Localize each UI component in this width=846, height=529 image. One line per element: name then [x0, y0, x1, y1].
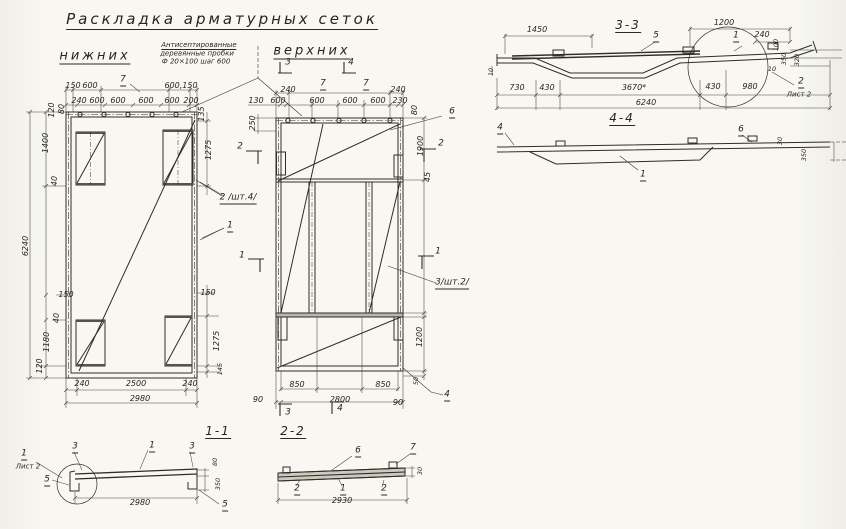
ref-upper-mesh-3: 3/шт.2/ — [435, 279, 469, 290]
plug-note-line3: Ф 20×100 шаг 600 — [162, 59, 231, 66]
dim-lv-left-6240: 6240 — [22, 236, 30, 256]
cut-mark-1-left: 1 — [239, 252, 245, 261]
dim-uv-top2-230: 230 — [392, 97, 407, 105]
dim-s33-320: 320 — [794, 54, 801, 66]
dim-lv-left-1400: 1400 — [42, 133, 50, 153]
dim-lv-bot-240a: 240 — [74, 380, 89, 388]
dim-uv-bot-850b: 850 — [375, 381, 390, 389]
ref-lower-mesh-1: 1 — [227, 222, 233, 233]
dim-uv-right-50: 50 — [413, 377, 420, 385]
dim-lv-top2-600d: 600 — [164, 97, 179, 105]
ref-s22-2b: 2 — [381, 485, 387, 496]
cut-mark-3-bottom: 3 — [285, 409, 291, 418]
section-1-1-title: 1-1 — [205, 425, 231, 439]
dim-uv-left-250: 250 — [249, 115, 257, 130]
dim-s33-100: 100 — [773, 39, 780, 51]
cut-mark-2-right: 2 — [438, 140, 444, 149]
dim-s11-80: 80 — [212, 458, 219, 466]
ref-s44-6: 6 — [738, 126, 744, 137]
section-2-2-profile — [278, 462, 405, 481]
ref-s22-6: 6 — [355, 447, 361, 458]
dim-lv-left-40b: 40 — [53, 313, 61, 323]
dim-lv-right-135: 135 — [198, 106, 206, 121]
cut-mark-1-right: 1 — [435, 248, 441, 257]
section-4-4-title: 4-4 — [609, 112, 635, 126]
ref-s11-5a: 5 — [44, 476, 50, 487]
dim-uv-right-45: 45 — [424, 172, 432, 182]
dim-uv-right-80: 80 — [411, 105, 419, 115]
dim-s22-30: 30 — [417, 467, 424, 475]
ref-s11-3a: 3 — [72, 443, 78, 454]
dim-lv-right-145: 145 — [217, 363, 224, 375]
dim-s33-6240: 6240 — [636, 99, 656, 107]
dim-uv-bot-90a: 90 — [253, 396, 263, 404]
ref-s11-5b: 5 — [222, 501, 228, 512]
dim-lv-top1-600-150: 600,150 — [164, 82, 197, 90]
dim-s33-10: 10 — [768, 66, 776, 73]
cut-mark-4-top: 4 — [348, 59, 354, 68]
dim-uv-top2-600c: 600 — [342, 97, 357, 105]
ref-s33-2: 2 — [798, 78, 804, 89]
ref-s33-5: 5 — [653, 32, 659, 43]
dim-lv-top1-150: 150 — [65, 82, 80, 90]
dim-lv-left-1180: 1180 — [43, 332, 51, 352]
blueprint-sheet: Раскладка арматурных сеток нижних Антисе… — [0, 0, 846, 529]
dim-s33-730: 730 — [509, 84, 524, 92]
ref-s44-4: 4 — [497, 124, 503, 135]
dim-s33-240: 240 — [754, 31, 769, 39]
dim-s33-1450: 1450 — [527, 26, 547, 34]
dim-s44-350: 350 — [801, 149, 808, 161]
dim-uv-top2-600d: 600 — [370, 97, 385, 105]
dim-lv-bot-240b: 240 — [182, 380, 197, 388]
ref-s44-1: 1 — [640, 171, 646, 182]
ref-s11-1: 1 — [149, 442, 155, 453]
ref-s33-1: 1 — [733, 32, 739, 43]
cut-mark-4-bottom: 4 — [337, 405, 343, 414]
dim-s11-2980: 2980 — [130, 499, 150, 507]
dim-uv-top2-600b: 600 — [309, 97, 324, 105]
dim-lv-right-1275b: 1275 — [213, 331, 221, 351]
ref-uv-plugs-7a: 7 — [320, 80, 326, 91]
ref-s33-sheet2: Лист 2 — [787, 92, 811, 99]
cut-mark-2-left: 2 — [237, 143, 243, 152]
dim-s33-350: 350 — [781, 53, 788, 65]
sheet-title: Раскладка арматурных сеток — [66, 12, 378, 30]
section-3-3-title: 3-3 — [615, 19, 641, 33]
dim-lv-left-150: 150 — [58, 291, 73, 299]
dim-s33-3670: 3670* — [622, 84, 646, 92]
dim-uv-right-1200: 1200 — [416, 327, 424, 347]
ref-s11-3b: 3 — [189, 443, 195, 454]
section-2-2-title: 2-2 — [280, 425, 306, 439]
ref-s22-1: 1 — [340, 485, 346, 496]
ref-upper-mesh-4: 4 — [444, 391, 450, 402]
dim-uv-bot-90b: 90 — [393, 399, 403, 407]
dim-s44-30: 30 — [777, 137, 784, 145]
dim-lv-right-1275t: 1275 — [205, 140, 213, 160]
ref-lower-mesh-2: 2 /шт.4/ — [220, 194, 257, 205]
ref-s11-detail-1: 1 — [21, 450, 27, 461]
dim-lv-bot-2980: 2980 — [130, 395, 150, 403]
ref-s11-detail-sheet: Лист 2 — [16, 464, 40, 471]
dim-lv-top2-240: 240 — [71, 97, 86, 105]
dim-lv-bot-2500: 2500 — [126, 380, 146, 388]
dim-s22-2930: 2930 — [332, 497, 352, 505]
lower-view-subtitle: нижних — [59, 50, 130, 65]
plug-note-line2: деревянные пробки — [160, 51, 234, 58]
dim-s33-left-10: 10 — [488, 68, 495, 76]
dim-s11-350: 350 — [215, 478, 222, 490]
dim-uv-right-1900: 1900 — [417, 136, 425, 156]
dim-s33-1200: 1200 — [714, 19, 734, 27]
dim-s33-430b: 430 — [705, 83, 720, 91]
lower-view-frame — [66, 112, 197, 378]
dim-lv-left-120t: 120 — [48, 102, 56, 117]
dim-lv-right-150: 150 — [200, 289, 215, 297]
upper-view-frame — [276, 118, 403, 371]
ref-s22-7: 7 — [410, 444, 416, 455]
drawing-linework — [0, 0, 846, 529]
section-cut-marks — [246, 62, 436, 416]
dim-lv-top2-600c: 600 — [138, 97, 153, 105]
ref-uv-plugs-7b: 7 — [363, 80, 369, 91]
dim-uv-top2-130: 130 — [248, 97, 263, 105]
dim-lv-top2-600b: 600 — [110, 97, 125, 105]
dim-lv-top2-600a: 600 — [89, 97, 104, 105]
dim-uv-top2-600a: 600 — [270, 97, 285, 105]
dim-s33-430a: 430 — [539, 84, 554, 92]
dim-uv-bot-850a: 850 — [289, 381, 304, 389]
dim-lv-left-40t: 40 — [51, 176, 59, 186]
ref-lv-plugs-7: 7 — [120, 76, 126, 87]
dim-lv-top1-600: 600 — [82, 82, 97, 90]
ref-upper-mesh-6: 6 — [449, 108, 455, 119]
section-4-4-profile — [497, 136, 846, 164]
cut-mark-3-top: 3 — [285, 59, 291, 68]
dim-lv-left-80: 80 — [58, 104, 66, 114]
dim-lv-left-120b: 120 — [36, 358, 44, 373]
upper-view-dimension-lines — [248, 90, 427, 409]
ref-s22-2a: 2 — [294, 485, 300, 496]
dim-s33-980: 980 — [742, 83, 757, 91]
dim-uv-top1-240a: 240 — [280, 86, 295, 94]
dim-lv-top2-200: 200 — [183, 97, 198, 105]
dim-uv-top1-240b: 240 — [390, 86, 405, 94]
